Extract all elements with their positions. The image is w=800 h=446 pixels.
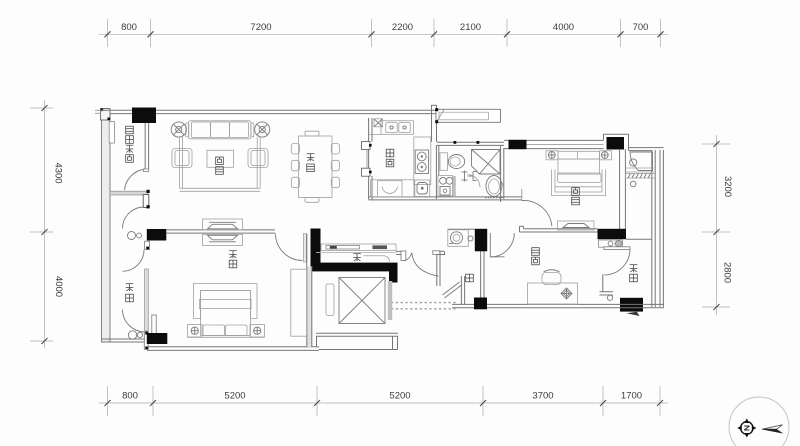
svg-text:2800: 2800 [722, 262, 733, 283]
svg-text:2100: 2100 [460, 22, 481, 33]
svg-text:3200: 3200 [722, 176, 733, 197]
svg-text:1700: 1700 [621, 391, 642, 402]
svg-text:4000: 4000 [53, 276, 64, 297]
svg-text:800: 800 [122, 391, 138, 402]
svg-text:800: 800 [121, 22, 137, 33]
svg-text:5200: 5200 [224, 391, 245, 402]
svg-text:7200: 7200 [250, 22, 271, 33]
svg-text:2200: 2200 [392, 22, 413, 33]
svg-text:5200: 5200 [389, 391, 410, 402]
svg-text:4300: 4300 [53, 162, 64, 183]
svg-text:3700: 3700 [532, 391, 553, 402]
svg-text:4000: 4000 [553, 22, 574, 33]
svg-text:700: 700 [633, 22, 649, 33]
